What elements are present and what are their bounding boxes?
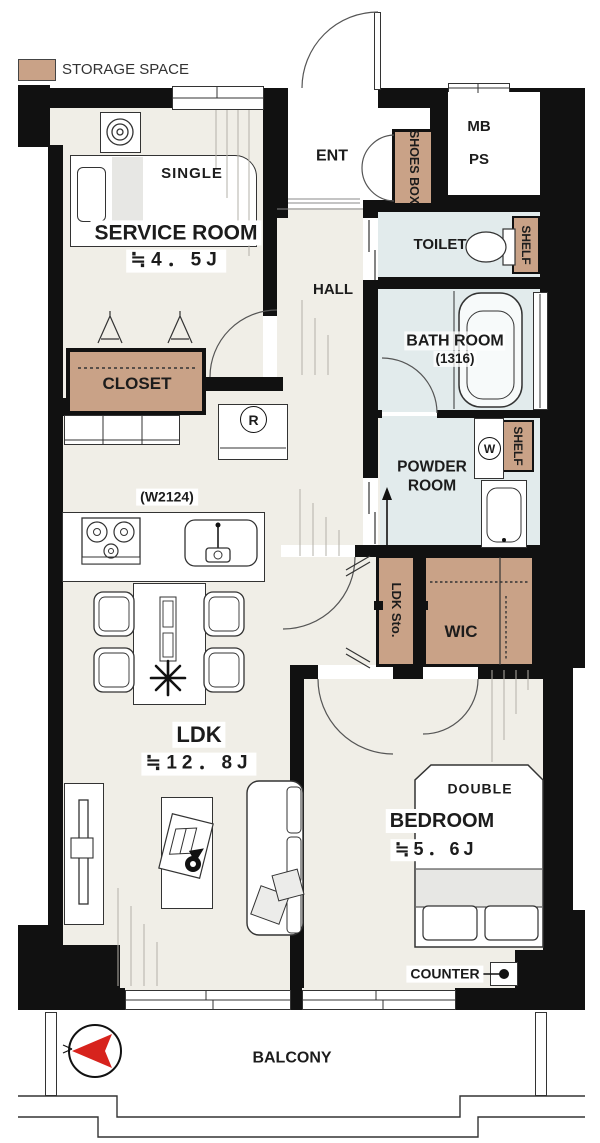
washing-machine-label: W [484, 442, 495, 456]
powder-sink [481, 480, 527, 548]
single-bed-label: SINGLE [161, 165, 223, 183]
hall-label: HALL [313, 281, 353, 299]
wall-segment [363, 280, 378, 480]
dining-table [133, 583, 206, 705]
window-balcony-right [302, 990, 456, 1010]
wall-segment [18, 88, 172, 108]
wall-segment [48, 945, 120, 990]
wic [423, 555, 535, 667]
kitchen-counter [62, 512, 265, 582]
kitchen-width-label: (W2124) [136, 489, 198, 506]
meter-box-label: MB [467, 118, 490, 136]
entrance-door-leaf [374, 12, 381, 90]
wall-segment [535, 548, 585, 668]
wall-segment [300, 665, 320, 679]
wall-segment [48, 145, 63, 957]
wall-segment [378, 88, 434, 108]
storage-legend-label: STORAGE SPACE [62, 61, 189, 79]
toilet-shelf-label: SHELF [519, 225, 533, 264]
tv-board [64, 783, 104, 925]
wall-segment [370, 410, 382, 418]
ldk-size: ≒12．8J [141, 753, 256, 776]
window-bathroom [533, 292, 548, 410]
closet-label: CLOSET [103, 374, 172, 394]
wall-segment [205, 377, 283, 391]
wall-segment [478, 665, 545, 679]
wall-segment [393, 665, 423, 679]
wic-label: WIC [444, 622, 477, 642]
wall-segment [370, 277, 540, 289]
door-opening-ldk [281, 545, 355, 557]
wall-segment [18, 988, 125, 1010]
door-opening-toilet [363, 218, 378, 280]
ldk-storage-label: LDK Sto. [388, 583, 404, 638]
balcony-outline [18, 1096, 585, 1137]
ldk-name: LDK [172, 722, 225, 748]
counter-box [490, 962, 518, 986]
refrigerator-label: R [248, 412, 258, 428]
bathroom-name: BATH ROOM [404, 331, 505, 350]
service-room-name: SERVICE ROOM [91, 220, 262, 245]
toilet-label: TOILET [413, 236, 466, 254]
wall-segment [363, 200, 540, 212]
wall-segment [543, 910, 585, 952]
wall-segment [543, 665, 573, 910]
storage-legend-swatch [18, 59, 56, 81]
balcony-divider-left [45, 1012, 57, 1096]
ceiling-light-box [100, 112, 141, 153]
window-service-room [172, 86, 264, 110]
closet-cabinets [64, 415, 180, 445]
washing-machine-symbol: W [478, 437, 501, 460]
powder-room-label: POWDER ROOM [385, 458, 479, 495]
counter-label: COUNTER [406, 966, 483, 983]
bathroom-size: (1316) [433, 351, 476, 367]
door-opening-service-room [263, 316, 277, 377]
entrance-label: ENT [316, 146, 348, 165]
wall-segment [290, 988, 302, 1010]
door-opening-powder-room [363, 478, 378, 545]
balcony-label: BALCONY [252, 1048, 331, 1067]
compass-icon [63, 1025, 121, 1077]
coffee-table [161, 797, 213, 909]
window-balcony-left [125, 990, 291, 1010]
shoes-box-label: SHOES BOX [406, 130, 420, 204]
single-bed-pillow [77, 167, 106, 222]
wall-segment [263, 218, 277, 318]
entrance-door-arc [302, 12, 378, 88]
floor-plan: R W STORAGE SPACE SINGLE SERVICE ROOM ≒4… [0, 0, 600, 1143]
balcony-divider-right [535, 1012, 547, 1096]
bedroom-name: BEDROOM [386, 809, 498, 833]
wall-segment [515, 950, 585, 1010]
refrigerator-symbol: R [240, 406, 267, 433]
bedroom-size: ≒5．6J [390, 839, 481, 861]
door-opening-wic [423, 665, 478, 679]
door-opening-entrance [288, 88, 378, 110]
powder-shelf-label: SHELF [511, 426, 525, 465]
meter-box-room [448, 92, 540, 195]
wall-segment [263, 96, 288, 218]
double-bed-label: DOUBLE [447, 781, 512, 798]
service-room-size: ≒4．5J [126, 250, 226, 273]
wall-segment [437, 410, 540, 418]
door-opening-bedroom [318, 665, 393, 679]
pipe-space-label: PS [469, 151, 489, 169]
wall-segment [290, 665, 304, 988]
